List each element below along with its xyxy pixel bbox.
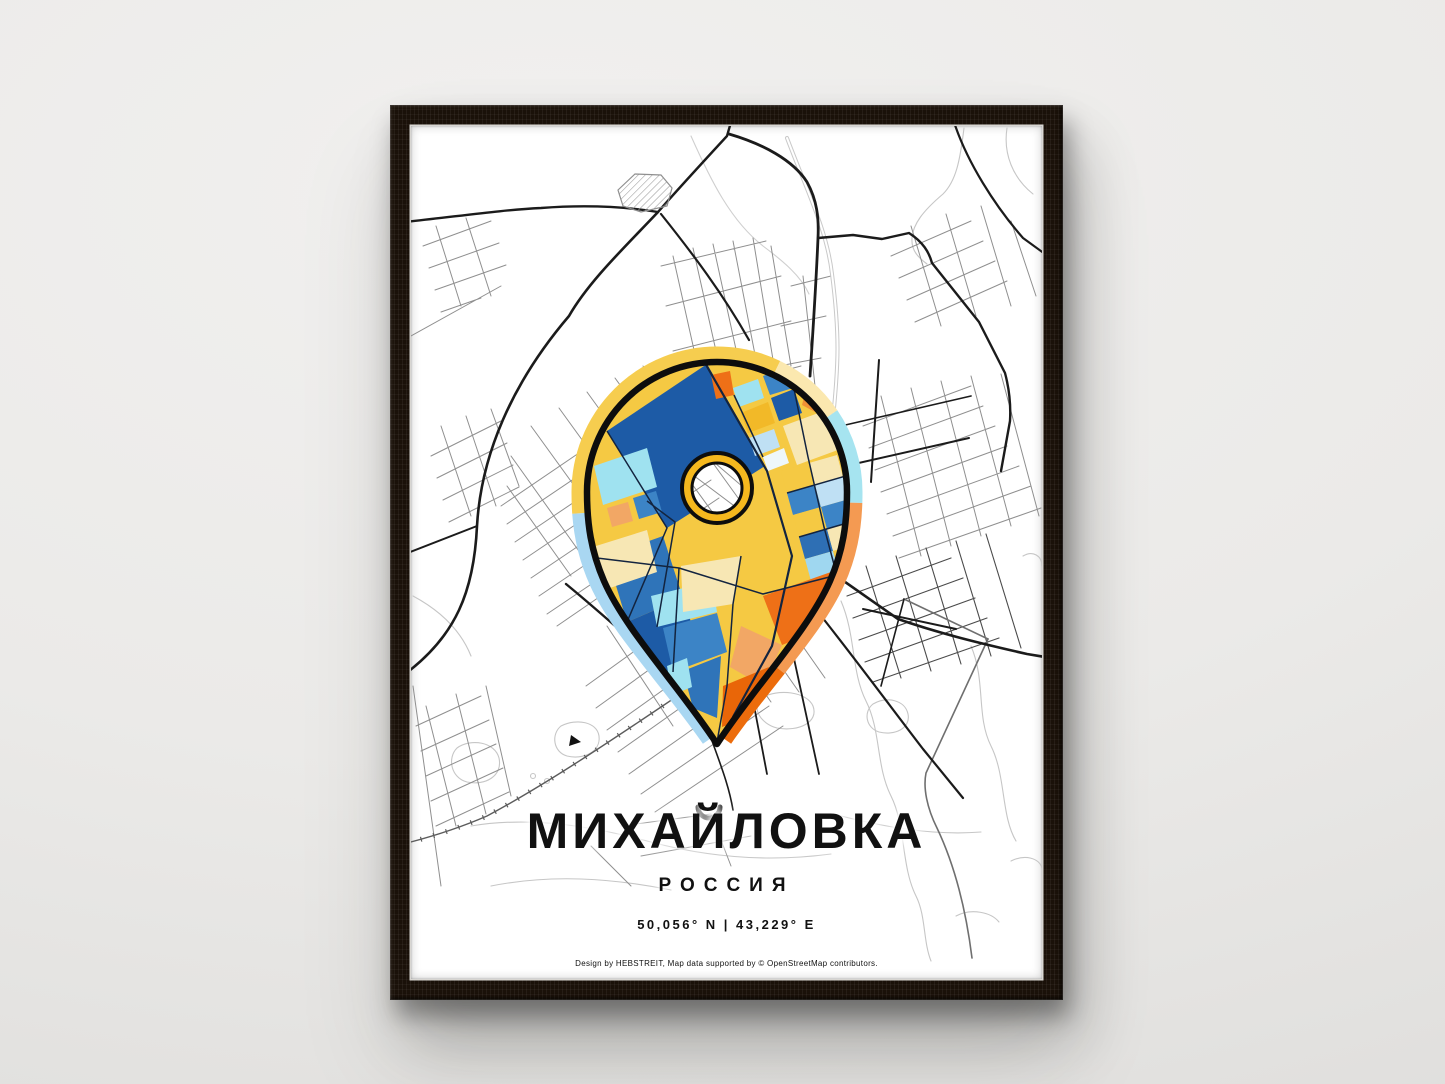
pin-center-ring — [683, 454, 752, 523]
location-pin-icon — [577, 352, 868, 754]
photo-stage: МИХАЙЛОВКА РОССИЯ 50,056° N | 43,229° E … — [0, 0, 1445, 1084]
city-map — [411, 126, 1042, 979]
picture-frame: МИХАЙЛОВКА РОССИЯ 50,056° N | 43,229° E … — [390, 105, 1063, 1000]
map-poster: МИХАЙЛОВКА РОССИЯ 50,056° N | 43,229° E … — [411, 126, 1042, 979]
street-grid-southeast — [847, 534, 1021, 682]
landmark-arc — [698, 807, 720, 818]
stadium-hatch — [618, 174, 672, 212]
